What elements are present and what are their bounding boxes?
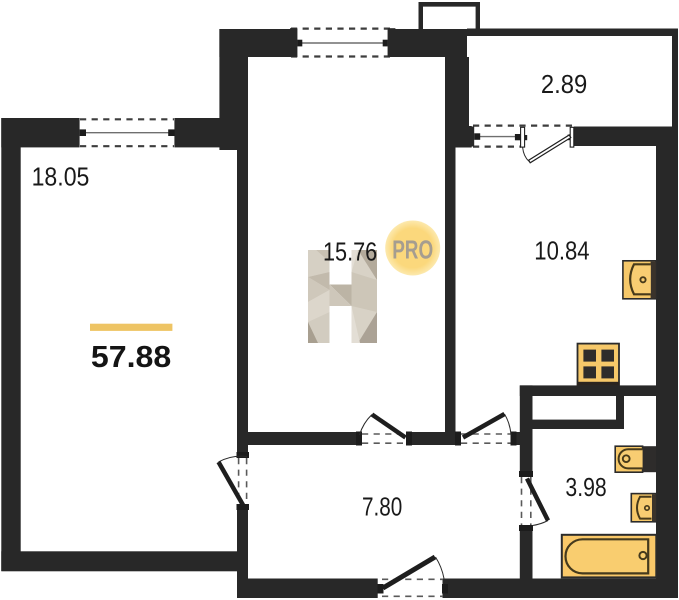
svg-text:10.84: 10.84 (534, 235, 589, 265)
svg-text:7.80: 7.80 (362, 492, 402, 522)
svg-text:57.88: 57.88 (91, 339, 171, 374)
svg-text:18.05: 18.05 (32, 162, 90, 192)
svg-text:2.89: 2.89 (541, 69, 587, 99)
svg-text:15.76: 15.76 (323, 237, 377, 267)
svg-text:PRO: PRO (392, 236, 433, 264)
svg-text:3.98: 3.98 (565, 472, 606, 502)
